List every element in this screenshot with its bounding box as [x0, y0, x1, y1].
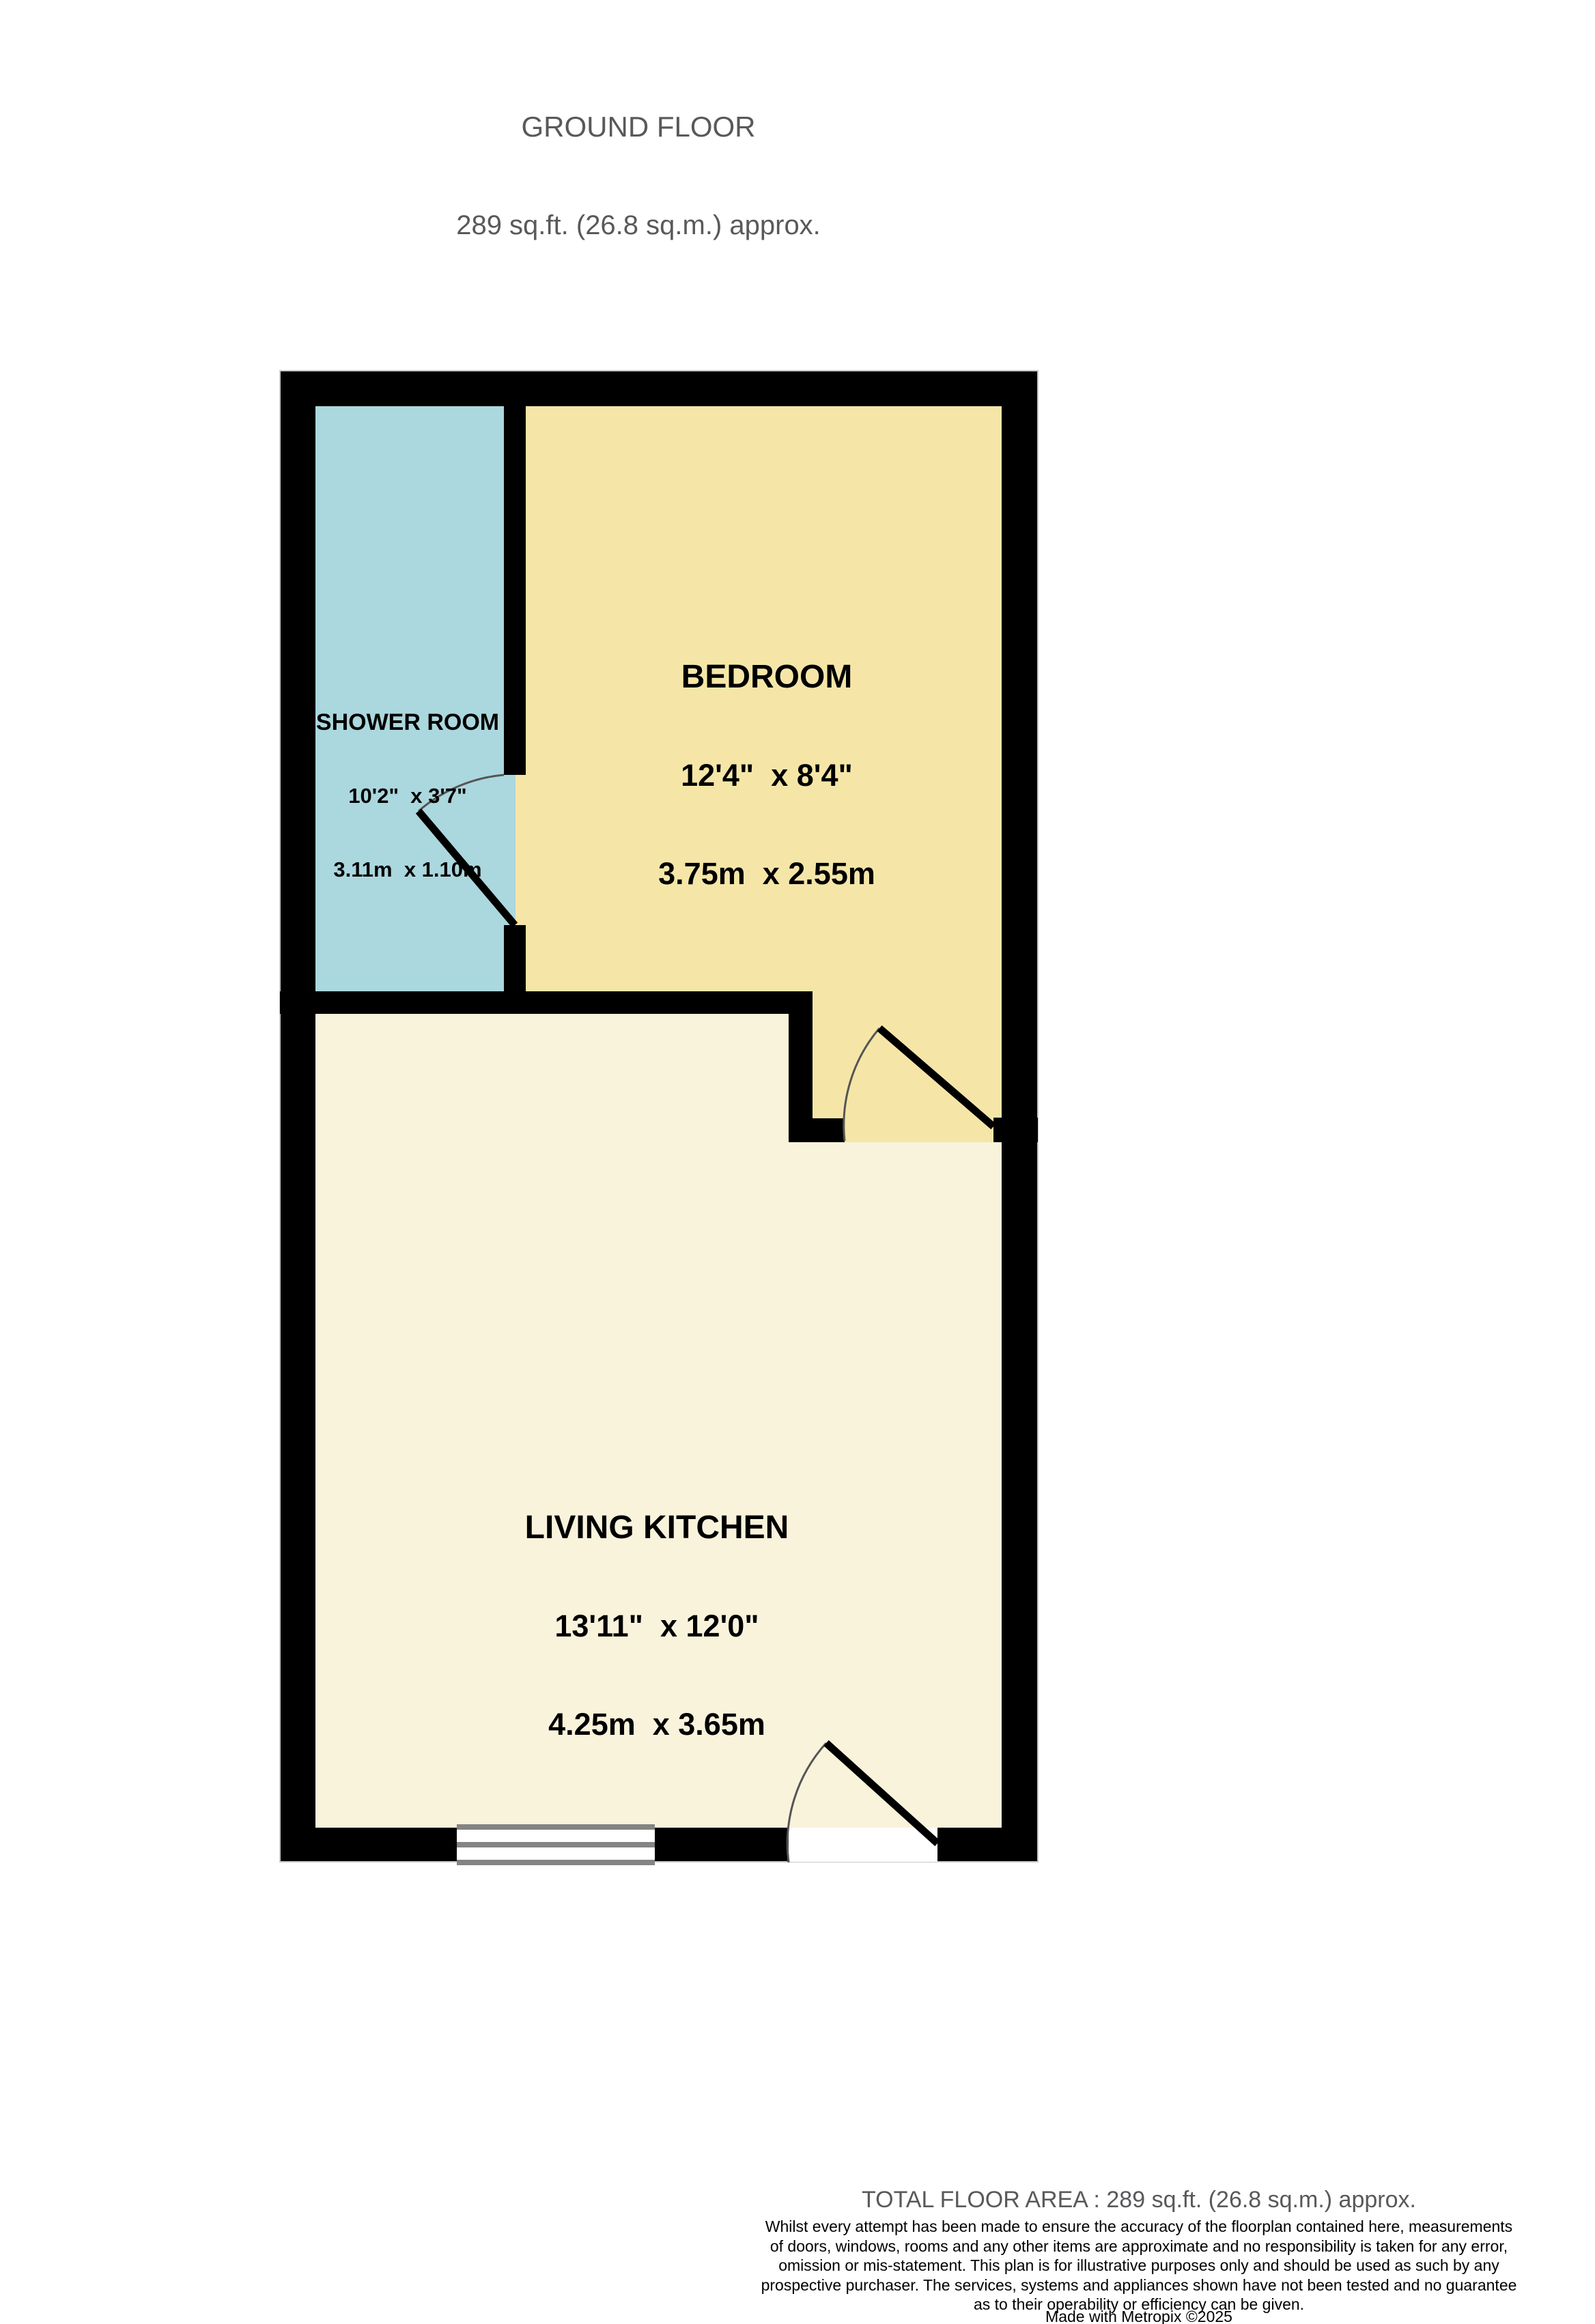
wall-bedroom-door-nub	[993, 1118, 1038, 1142]
room-label-shower-room: SHOWER ROOM 10'2" x 3'7" 3.11m x 1.10m	[316, 661, 499, 931]
room-name: LIVING KITCHEN	[525, 1512, 789, 1544]
room-name: SHOWER ROOM	[316, 710, 499, 735]
total-floor-area: TOTAL FLOOR AREA : 289 sq.ft. (26.8 sq.m…	[695, 2186, 1583, 2213]
wall-step-nub	[813, 1118, 845, 1142]
bedroom-door-opening-floor	[516, 775, 526, 925]
window-frame-line-top	[457, 1824, 655, 1830]
plan-header: GROUND FLOOR 289 sq.ft. (26.8 sq.m.) app…	[365, 45, 912, 307]
floor-area-subtitle: 289 sq.ft. (26.8 sq.m.) approx.	[365, 209, 912, 242]
wall-shower-bedroom-upper	[504, 406, 526, 775]
wall-step-vertical	[789, 1014, 813, 1142]
window-frame-line-bottom	[457, 1860, 655, 1865]
wall-shower-bedroom-lower	[504, 925, 526, 991]
entrance-opening	[789, 1828, 937, 1862]
disclaimer-text: Whilst every attempt has been made to en…	[692, 2217, 1586, 2314]
room-dimensions-metric: 4.25m x 3.65m	[525, 1708, 789, 1741]
room-dimensions-imperial: 12'4" x 8'4"	[658, 759, 875, 792]
room-dimensions-imperial: 13'11" x 12'0"	[525, 1610, 789, 1643]
room-dimensions-metric: 3.75m x 2.55m	[658, 858, 875, 890]
window-frame-line-middle	[457, 1842, 655, 1847]
room-label-living-kitchen: LIVING KITCHEN 13'11" x 12'0" 4.25m x 3.…	[525, 1446, 789, 1806]
room-dimensions-imperial: 10'2" x 3'7"	[316, 784, 499, 808]
floor-title: GROUND FLOOR	[365, 111, 912, 143]
floorplan-svg	[0, 0, 1595, 2324]
room-name: BEDROOM	[658, 661, 875, 694]
floorplan-page: GROUND FLOOR 289 sq.ft. (26.8 sq.m.) app…	[0, 0, 1595, 2324]
metropix-credit: Made with Metropix ©2025	[692, 2307, 1586, 2324]
shower-door-opening-floor	[504, 775, 516, 925]
room-dimensions-metric: 3.11m x 1.10m	[316, 858, 499, 882]
room-label-bedroom: BEDROOM 12'4" x 8'4" 3.75m x 2.55m	[658, 595, 875, 956]
wall-bedroom-living	[280, 991, 813, 1014]
